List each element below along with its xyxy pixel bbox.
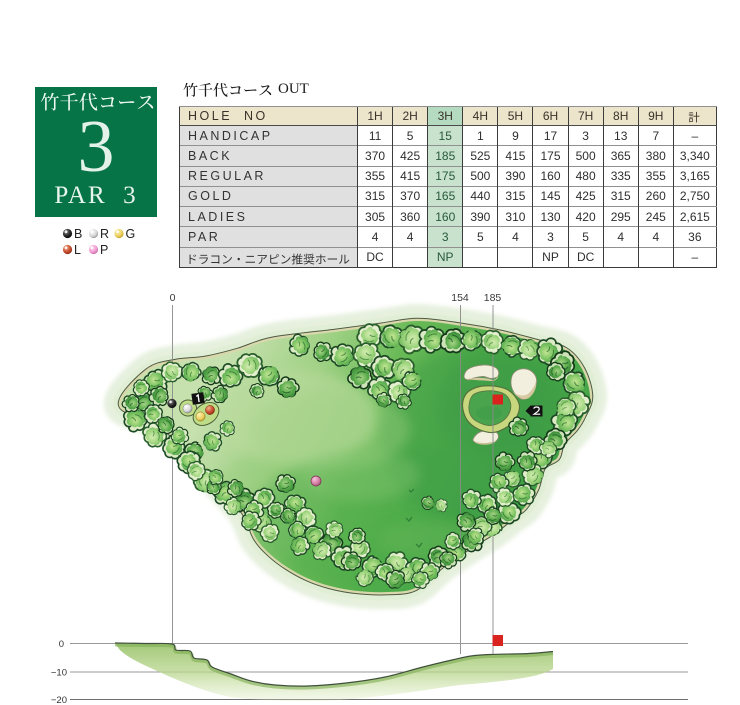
svg-text:−20: −20: [51, 695, 67, 705]
svg-text:0: 0: [170, 292, 176, 304]
svg-text:L: L: [74, 243, 81, 257]
svg-text:G: G: [126, 227, 136, 241]
svg-text:P: P: [100, 243, 108, 257]
svg-text:B: B: [74, 227, 82, 241]
svg-text:−10: −10: [51, 668, 67, 679]
svg-text:R: R: [100, 227, 109, 241]
svg-text:185: 185: [484, 292, 502, 304]
svg-text:154: 154: [451, 292, 469, 304]
svg-text:0: 0: [59, 639, 64, 650]
